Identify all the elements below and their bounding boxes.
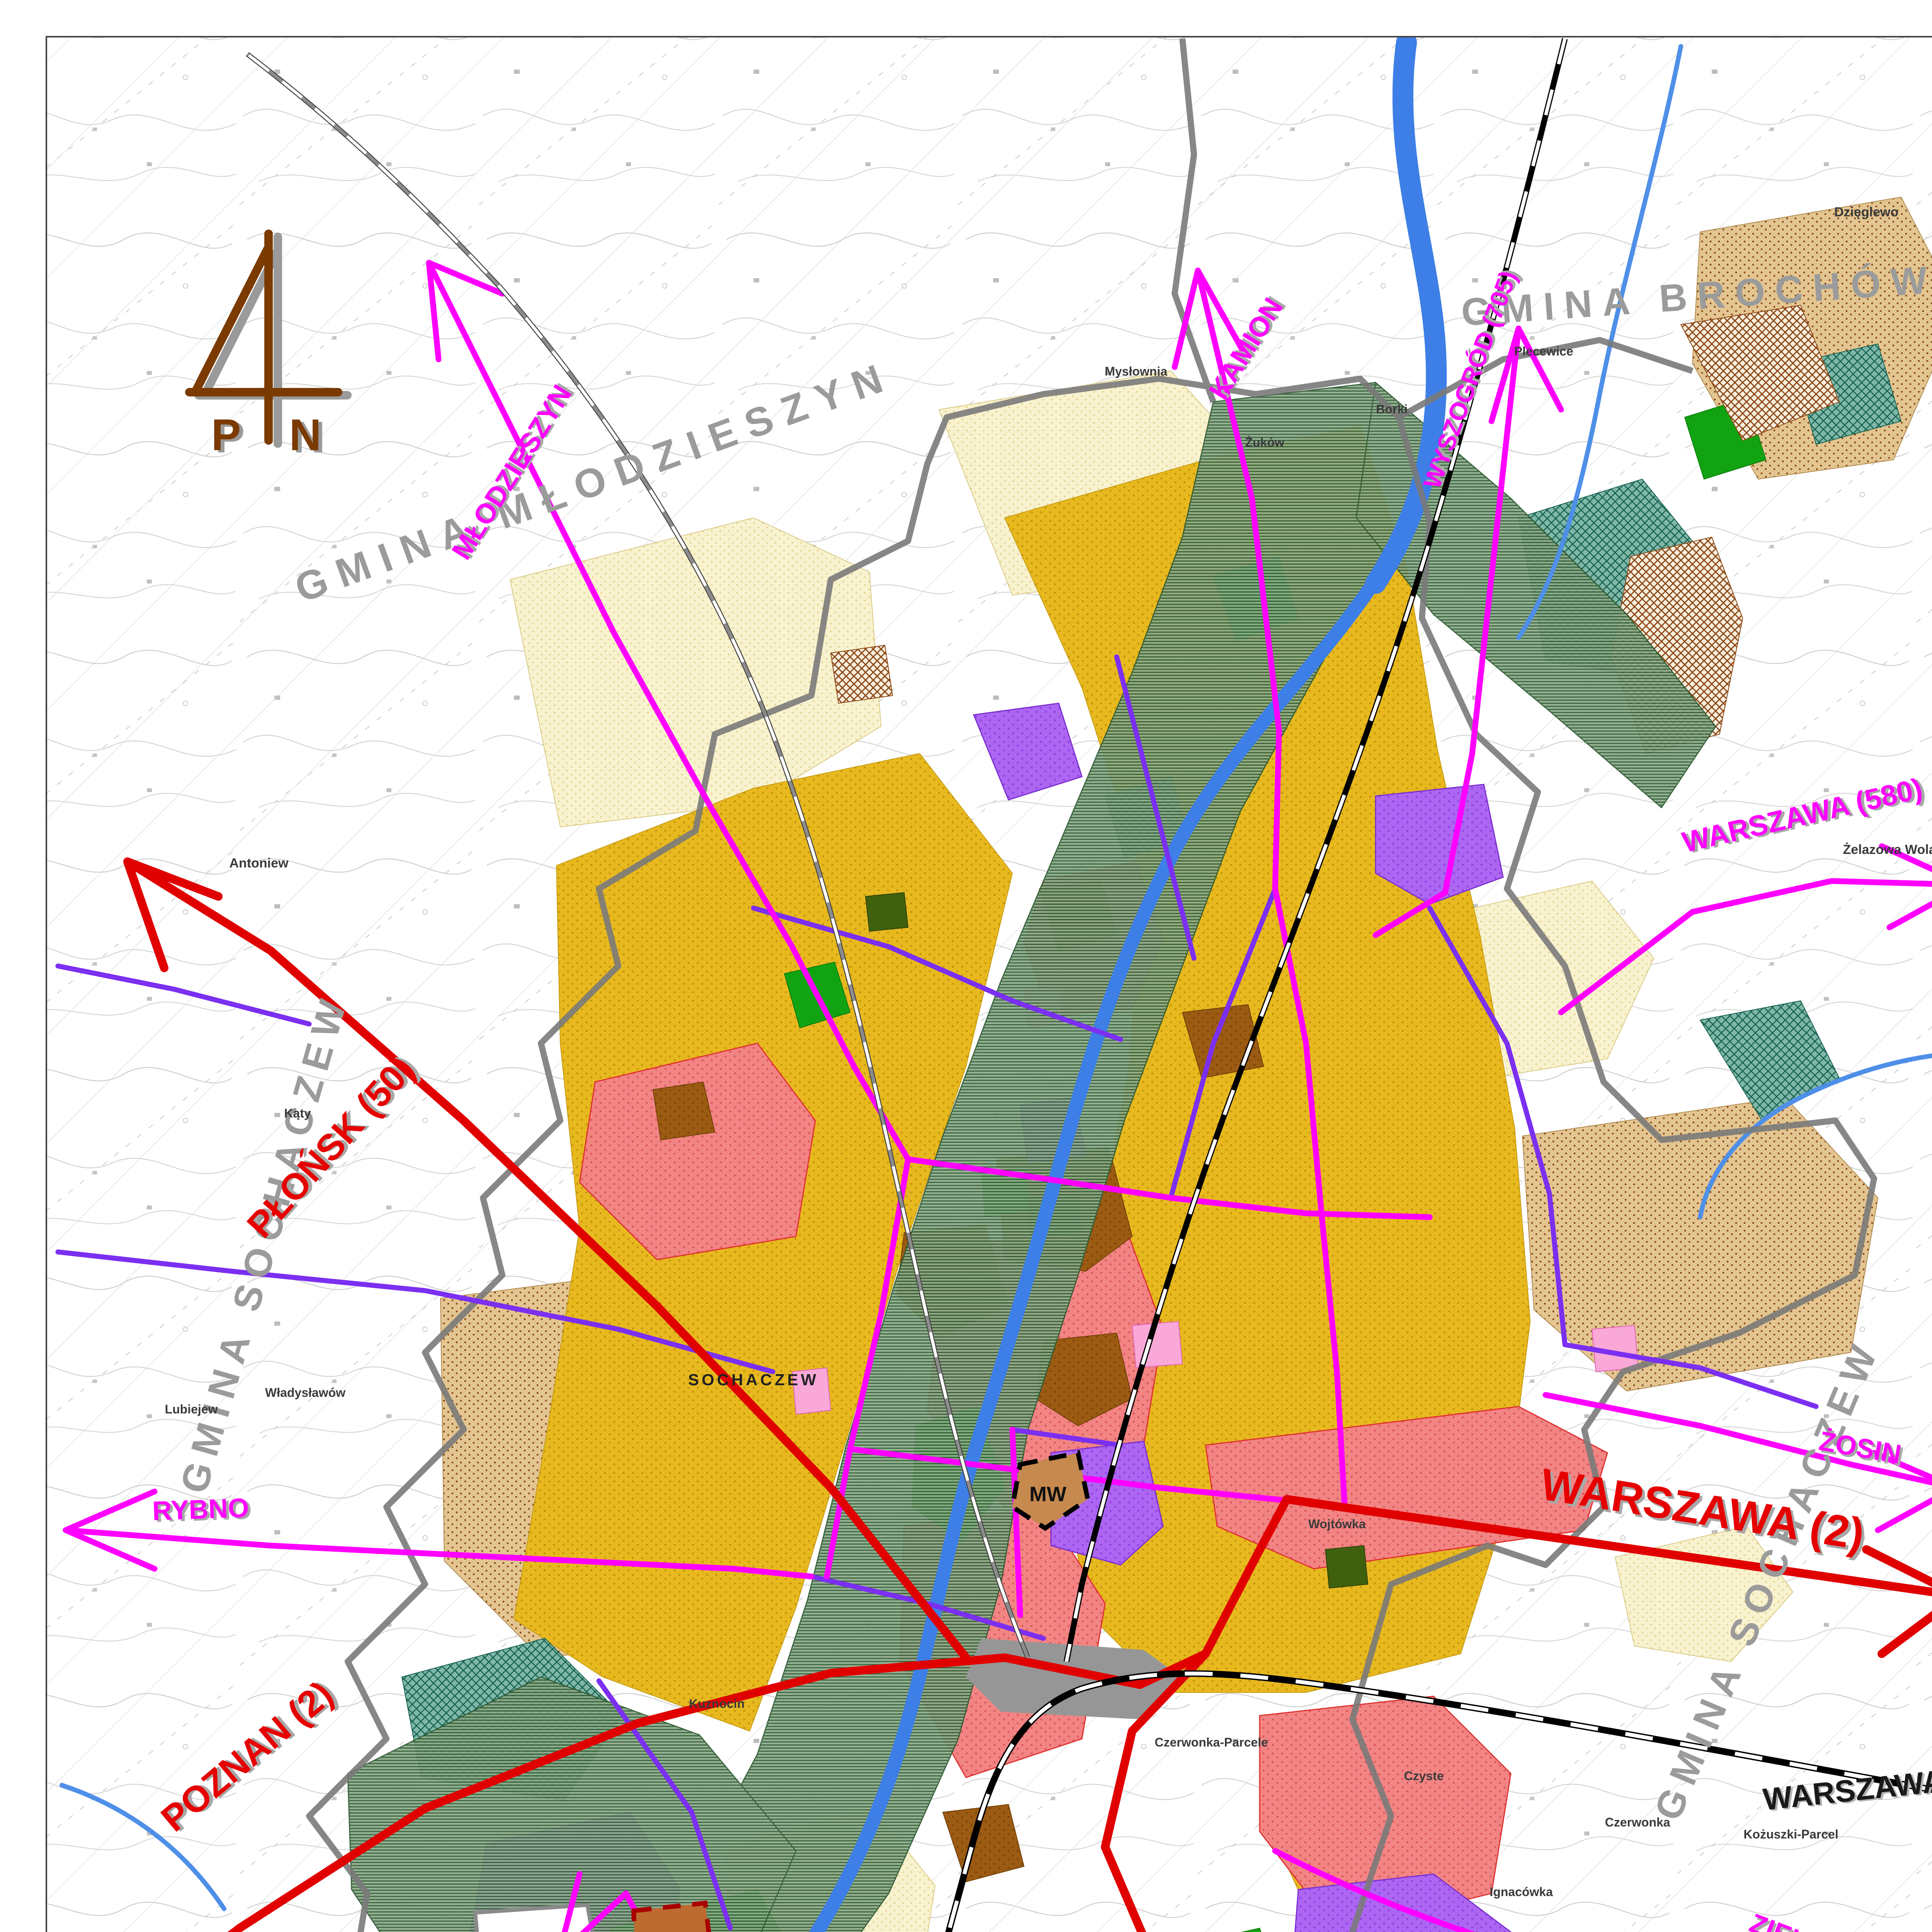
north-letter-n: N [289,410,321,460]
map-label-ignacówka: Ignacówka [1490,1885,1553,1899]
map-label-mw: MW [1029,1483,1066,1506]
map-label-czyste: Czyste [1404,1769,1444,1783]
map-label-żuków: Żuków [1245,435,1284,449]
map-label-plecewice: Plecewice [1514,344,1573,358]
map-label-mysłownia: Mysłownia [1105,364,1167,378]
map-label-kąty: Kąty [284,1106,311,1120]
map-label-antoniew: Antoniew [230,856,289,871]
map-sheet: P N GMINA MŁODZIESZYNGMINA BROCHÓWGMINA … [0,0,1932,1932]
map-label-dzięglewo: Dzięglewo [1834,205,1898,219]
map-label-czerwonka: Czerwonka [1605,1815,1670,1829]
north-letter-p: P [211,410,241,460]
map-label-czerwonka-parcele: Czerwonka-Parcele [1155,1735,1268,1749]
map-label-lubiejew: Lubiejew [165,1402,218,1416]
map-label-kożuszki-parcel: Kożuszki-Parcel [1743,1827,1838,1841]
map-label-sochaczew: SOCHACZEW [688,1371,819,1389]
map-label-rybno: RYBNO [152,1493,250,1526]
map-label-kuznocin: Kuznocin [689,1697,745,1711]
zone-mw1-change [634,1903,713,1932]
map-label-borki: Borki [1376,402,1408,416]
map-label-władysławów: Władysławów [265,1386,345,1400]
map-label-żelazowa-wola: Żelazowa Wola [1843,842,1932,857]
map-canvas: P N GMINA MŁODZIESZYNGMINA BROCHÓWGMINA … [0,0,1932,1932]
map-label-wojtówka: Wojtówka [1308,1517,1366,1531]
